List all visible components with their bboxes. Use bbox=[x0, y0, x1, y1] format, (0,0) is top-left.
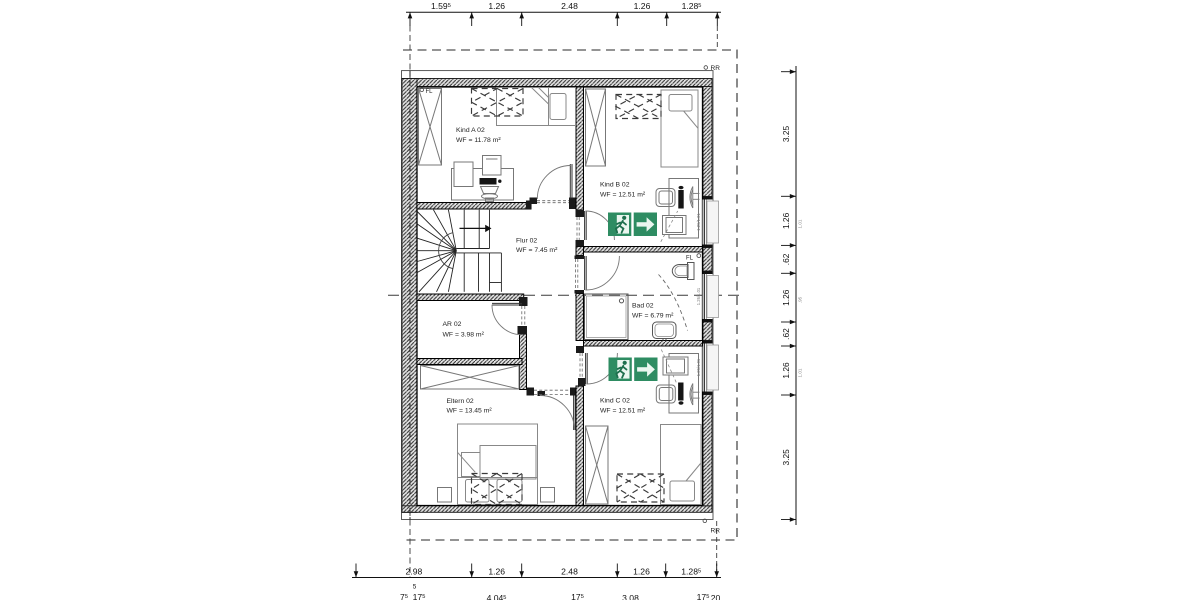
svg-text:1.26: 1.26 bbox=[488, 566, 505, 576]
svg-text:WF = 3.98 m²: WF = 3.98 m² bbox=[443, 332, 485, 339]
svg-text:3.08: 3.08 bbox=[622, 593, 639, 600]
svg-text:Flur 02: Flur 02 bbox=[516, 238, 537, 245]
svg-text:2.98: 2.98 bbox=[406, 566, 423, 576]
svg-text:FL: FL bbox=[686, 255, 694, 261]
svg-text:Kind C 02: Kind C 02 bbox=[600, 398, 630, 405]
svg-text:1.26: 1.26 bbox=[781, 362, 791, 379]
svg-text:FL: FL bbox=[426, 89, 434, 95]
svg-text:175: 175 bbox=[697, 592, 710, 600]
svg-text:1.01: 1.01 bbox=[798, 219, 803, 228]
svg-text:1.26: 1.26 bbox=[634, 1, 651, 11]
svg-text:RR: RR bbox=[711, 65, 721, 72]
svg-text:3.25: 3.25 bbox=[781, 126, 791, 143]
svg-text:WF = 13.45 m²: WF = 13.45 m² bbox=[447, 408, 493, 415]
svg-text:WF = 6.79 m²: WF = 6.79 m² bbox=[632, 313, 674, 320]
svg-text:1.26: 1.26 bbox=[781, 212, 791, 229]
svg-text:1.26/1.01: 1.26/1.01 bbox=[696, 287, 701, 305]
svg-text:75: 75 bbox=[400, 592, 408, 600]
svg-text:1.26: 1.26 bbox=[633, 566, 650, 576]
svg-text:1.01: 1.01 bbox=[798, 368, 803, 377]
svg-text:175: 175 bbox=[571, 592, 584, 600]
svg-text:.95: .95 bbox=[798, 296, 803, 303]
svg-text:WF = 11.78 m²: WF = 11.78 m² bbox=[456, 137, 501, 144]
svg-text:175: 175 bbox=[413, 592, 426, 600]
svg-text:Bad 02: Bad 02 bbox=[632, 303, 654, 310]
svg-text:3.25: 3.25 bbox=[781, 449, 791, 466]
svg-text:RR: RR bbox=[711, 528, 721, 535]
svg-text:Eltern 02: Eltern 02 bbox=[447, 398, 474, 405]
svg-text:1.26: 1.26 bbox=[781, 289, 791, 306]
svg-text:WF = 12.51 m²: WF = 12.51 m² bbox=[600, 192, 646, 199]
svg-text:20: 20 bbox=[711, 593, 721, 600]
svg-text:.62: .62 bbox=[781, 253, 791, 265]
svg-text:Kind A 02: Kind A 02 bbox=[456, 127, 485, 134]
svg-text:WF = 7.45 m²: WF = 7.45 m² bbox=[516, 247, 558, 254]
svg-text:4.045: 4.045 bbox=[487, 593, 507, 600]
svg-text:WF = 12.51 m²: WF = 12.51 m² bbox=[600, 408, 646, 415]
svg-text:2.48: 2.48 bbox=[561, 566, 578, 576]
svg-text:Kind B 02: Kind B 02 bbox=[600, 182, 630, 189]
svg-text:AR 02: AR 02 bbox=[443, 321, 462, 328]
svg-text:.62: .62 bbox=[781, 328, 791, 340]
svg-text:2.48: 2.48 bbox=[561, 1, 578, 11]
svg-text:1.26: 1.26 bbox=[488, 1, 505, 11]
svg-text:5: 5 bbox=[413, 584, 417, 591]
